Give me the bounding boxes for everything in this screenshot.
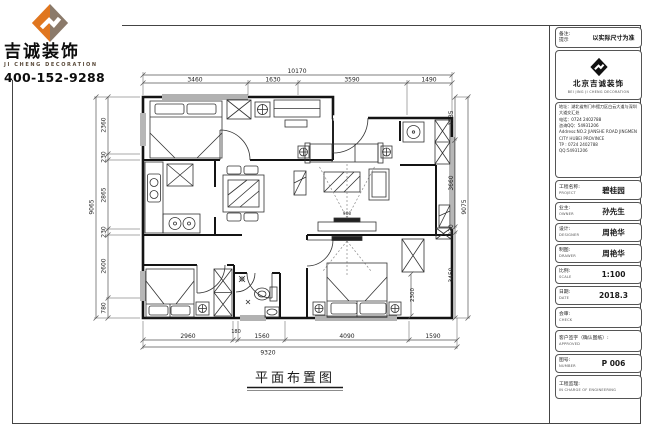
field-date: 日期:DATE 2018.3 — [555, 286, 642, 305]
chair-icon — [227, 166, 241, 174]
nightstand-lamp-icon — [196, 302, 209, 315]
chair-icon — [244, 166, 258, 174]
floor-drain-icon — [246, 300, 250, 304]
svg-text:3660: 3660 — [448, 175, 455, 190]
cabinet-icon — [274, 100, 320, 127]
owner-value: 孙先生 — [589, 206, 638, 217]
company-box: 北京吉诚装饰 BEI JING JI CHENG DECORATION — [555, 50, 642, 100]
field-owner: 业主:OWNER 孙先生 — [555, 202, 642, 221]
titleblock: 备注: 提示 以实际尺寸为准 北京吉诚装饰 BEI JING JI CHENG … — [555, 27, 642, 399]
toilet-icon — [255, 287, 278, 301]
windows — [140, 94, 455, 321]
fridge-icon — [167, 164, 193, 186]
drawing-title: 平面布置图 — [247, 371, 343, 391]
company-logo-block: 吉诚装饰 JI CHENG DECORATION 400-152-9288 — [4, 2, 122, 80]
tv-icon — [332, 237, 362, 241]
field-check: 会审:CHECK — [555, 307, 642, 328]
field-scale: 比例:SCALE 1:100 — [555, 265, 642, 284]
field-supervisor: 工程监理:IN CHARGE OF ENGINEERING — [555, 375, 642, 399]
laundry — [403, 120, 450, 164]
svg-text:1630: 1630 — [265, 77, 280, 84]
sink-icon — [148, 174, 161, 202]
nightstand-lamp-icon — [389, 302, 401, 315]
tb-company-en: BEI JING JI CHENG DECORATION — [568, 90, 630, 94]
dining-table-icon — [223, 175, 264, 212]
svg-text:1490: 1490 — [421, 77, 436, 84]
qq-en: QQ:54931206 — [559, 148, 638, 154]
floor-plan: 900 2300 — [12, 25, 549, 426]
svg-text:180: 180 — [231, 329, 241, 335]
plant-icon — [439, 205, 450, 227]
field-drawer: 制图:DRAWER 周艳华 — [555, 244, 642, 263]
svg-text:230: 230 — [101, 226, 108, 238]
coffee-table-icon — [324, 172, 360, 192]
tv-sightlines — [323, 241, 371, 275]
project-value: 碧桂园 — [589, 185, 638, 196]
chair-icon — [244, 213, 258, 221]
company-name-cn: 吉诚装饰 — [4, 44, 122, 62]
svg-text:平面布置图: 平面布置图 — [255, 371, 335, 386]
date-value: 2018.3 — [589, 291, 638, 300]
company-mini-logo-icon — [589, 57, 609, 77]
company-logo-icon — [30, 2, 70, 44]
field-project: 工程名称:PROJECT 碧桂园 — [555, 180, 642, 200]
company-phone: 400-152-9288 — [4, 70, 122, 85]
address-cn: 地址：湖北省荆门市掇刀区白云大道与深圳大道交汇处 — [559, 104, 638, 117]
ceiling-lamp-icon — [255, 102, 270, 117]
dim-top-total: 10170 — [287, 68, 306, 75]
side-table-lamp-icon — [298, 146, 309, 158]
dim-interior: 2300 — [409, 272, 417, 319]
shower-icon — [236, 273, 255, 292]
dim-tv-note: 900 — [343, 211, 352, 217]
bed-icon — [146, 269, 194, 317]
svg-text:230: 230 — [101, 151, 108, 163]
bedroom-2 — [146, 269, 232, 317]
svg-text:3450: 3450 — [448, 267, 455, 282]
contact-box: 地址：湖北省荆门市掇刀区白云大道与深圳大道交汇处 电话：0724 2402788… — [555, 102, 642, 178]
bathroom — [236, 273, 279, 317]
wardrobe-icon — [402, 239, 424, 272]
field-approved: 客户签字（确认图纸）:APPROVED — [555, 330, 642, 352]
svg-text:3460: 3460 — [187, 77, 202, 84]
svg-text:2300: 2300 — [410, 288, 416, 302]
titleblock-divider — [549, 25, 550, 424]
field-number: 图号:NUMBER P 006 — [555, 354, 642, 373]
svg-text:3590: 3590 — [344, 77, 359, 84]
svg-text:780: 780 — [101, 302, 108, 314]
chair-icon — [227, 213, 241, 221]
address-en: Address:NO.2 JIANSHE ROAD JINGMEN CITY H… — [559, 129, 638, 142]
company-name-en: JI CHENG DECORATION — [4, 62, 122, 68]
drawer-value: 周艳华 — [589, 248, 638, 259]
field-designer: 设计:DESIGNER 周艳华 — [555, 223, 642, 242]
dim-bottom-total: 9320 — [260, 350, 275, 357]
svg-text:1560: 1560 — [254, 333, 269, 340]
drawing-sheet: 吉诚装饰 JI CHENG DECORATION 400-152-9288 — [0, 0, 650, 433]
scale-value: 1:100 — [589, 270, 638, 279]
remark-value: 以实际尺寸为准 — [589, 33, 638, 42]
svg-text:2865: 2865 — [101, 187, 108, 202]
kitchen — [145, 162, 200, 233]
bed-icon — [327, 263, 387, 317]
svg-text:2360: 2360 — [101, 117, 108, 132]
svg-text:2960: 2960 — [180, 333, 195, 340]
washing-machine-icon — [403, 122, 424, 142]
tb-company-cn: 北京吉诚装饰 — [573, 78, 624, 89]
designer-value: 周艳华 — [589, 227, 638, 238]
washbasin-icon — [265, 307, 279, 317]
svg-text:4090: 4090 — [339, 333, 354, 340]
master-bedroom: 2300 — [313, 237, 424, 319]
armchair-icon — [369, 169, 389, 200]
dim-right-total: 9075 — [461, 199, 468, 214]
bedroom-1 — [150, 100, 320, 158]
svg-text:2600: 2600 — [101, 258, 108, 273]
living-room: 900 — [294, 143, 392, 231]
dim-left-total: 9065 — [89, 199, 96, 214]
dining-area — [223, 166, 264, 221]
plant-icon — [294, 171, 306, 195]
svg-text:1735: 1735 — [448, 110, 455, 125]
remark-box: 备注: 提示 以实际尺寸为准 — [555, 27, 642, 48]
stove-icon — [163, 214, 200, 233]
walls — [143, 97, 452, 318]
svg-text:1590: 1590 — [425, 333, 440, 340]
number-value: P 006 — [589, 359, 638, 368]
wardrobe-icon — [227, 100, 251, 119]
svg-text:230: 230 — [448, 224, 455, 236]
tv-cabinet-icon — [318, 218, 376, 231]
nightstand-lamp-icon — [313, 302, 325, 315]
